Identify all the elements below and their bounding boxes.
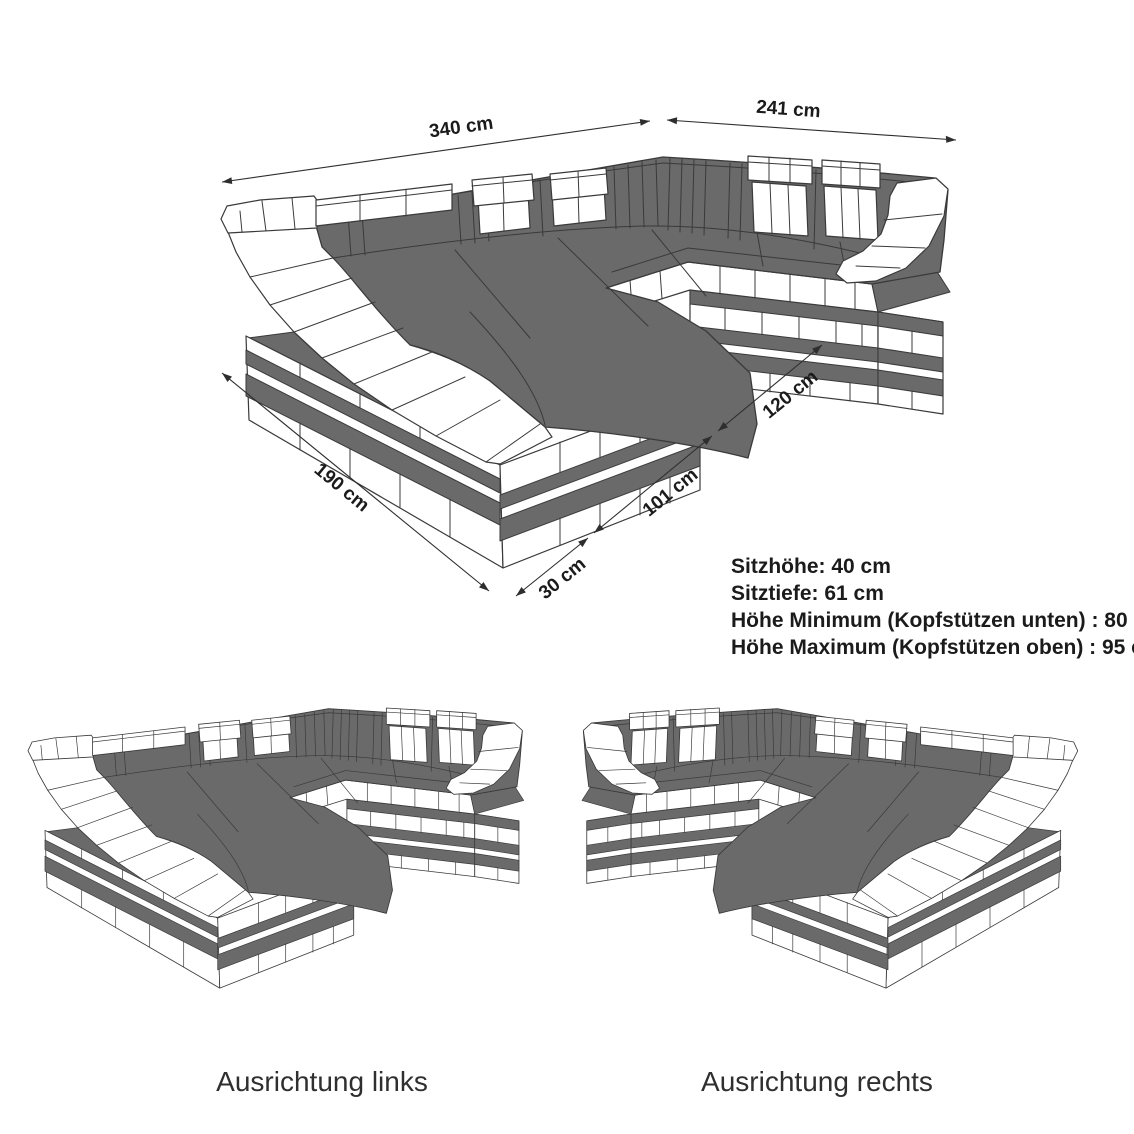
spec-hoehe-minimum: Höhe Minimum (Kopfstützen unten) : 80 cm — [731, 607, 1134, 634]
dimension-label-back-width: 340 cm — [428, 113, 495, 143]
spec-text-block: Sitzhöhe: 40 cm Sitztiefe: 61 cm Höhe Mi… — [731, 553, 1134, 661]
sofa-dimension-diagram: 340 cm 241 cm 190 cm 30 cm 101 cm 120 cm… — [0, 0, 1134, 1134]
spec-sitzhoehe: Sitzhöhe: 40 cm — [731, 553, 1134, 580]
spec-hoehe-maximum: Höhe Maximum (Kopfstützen oben) : 95 cm — [731, 634, 1134, 661]
caption-ausrichtung-links: Ausrichtung links — [162, 1066, 482, 1098]
sofa-drawing-rechts — [582, 708, 1078, 988]
dimension-label-base-ledge: 30 cm — [535, 554, 590, 604]
sofa-drawing-links — [28, 708, 524, 988]
dimension-label-right-width: 241 cm — [756, 97, 822, 122]
spec-sitztiefe: Sitztiefe: 61 cm — [731, 580, 1134, 607]
caption-ausrichtung-rechts: Ausrichtung rechts — [657, 1066, 977, 1098]
sofa-drawing-main — [221, 156, 950, 568]
